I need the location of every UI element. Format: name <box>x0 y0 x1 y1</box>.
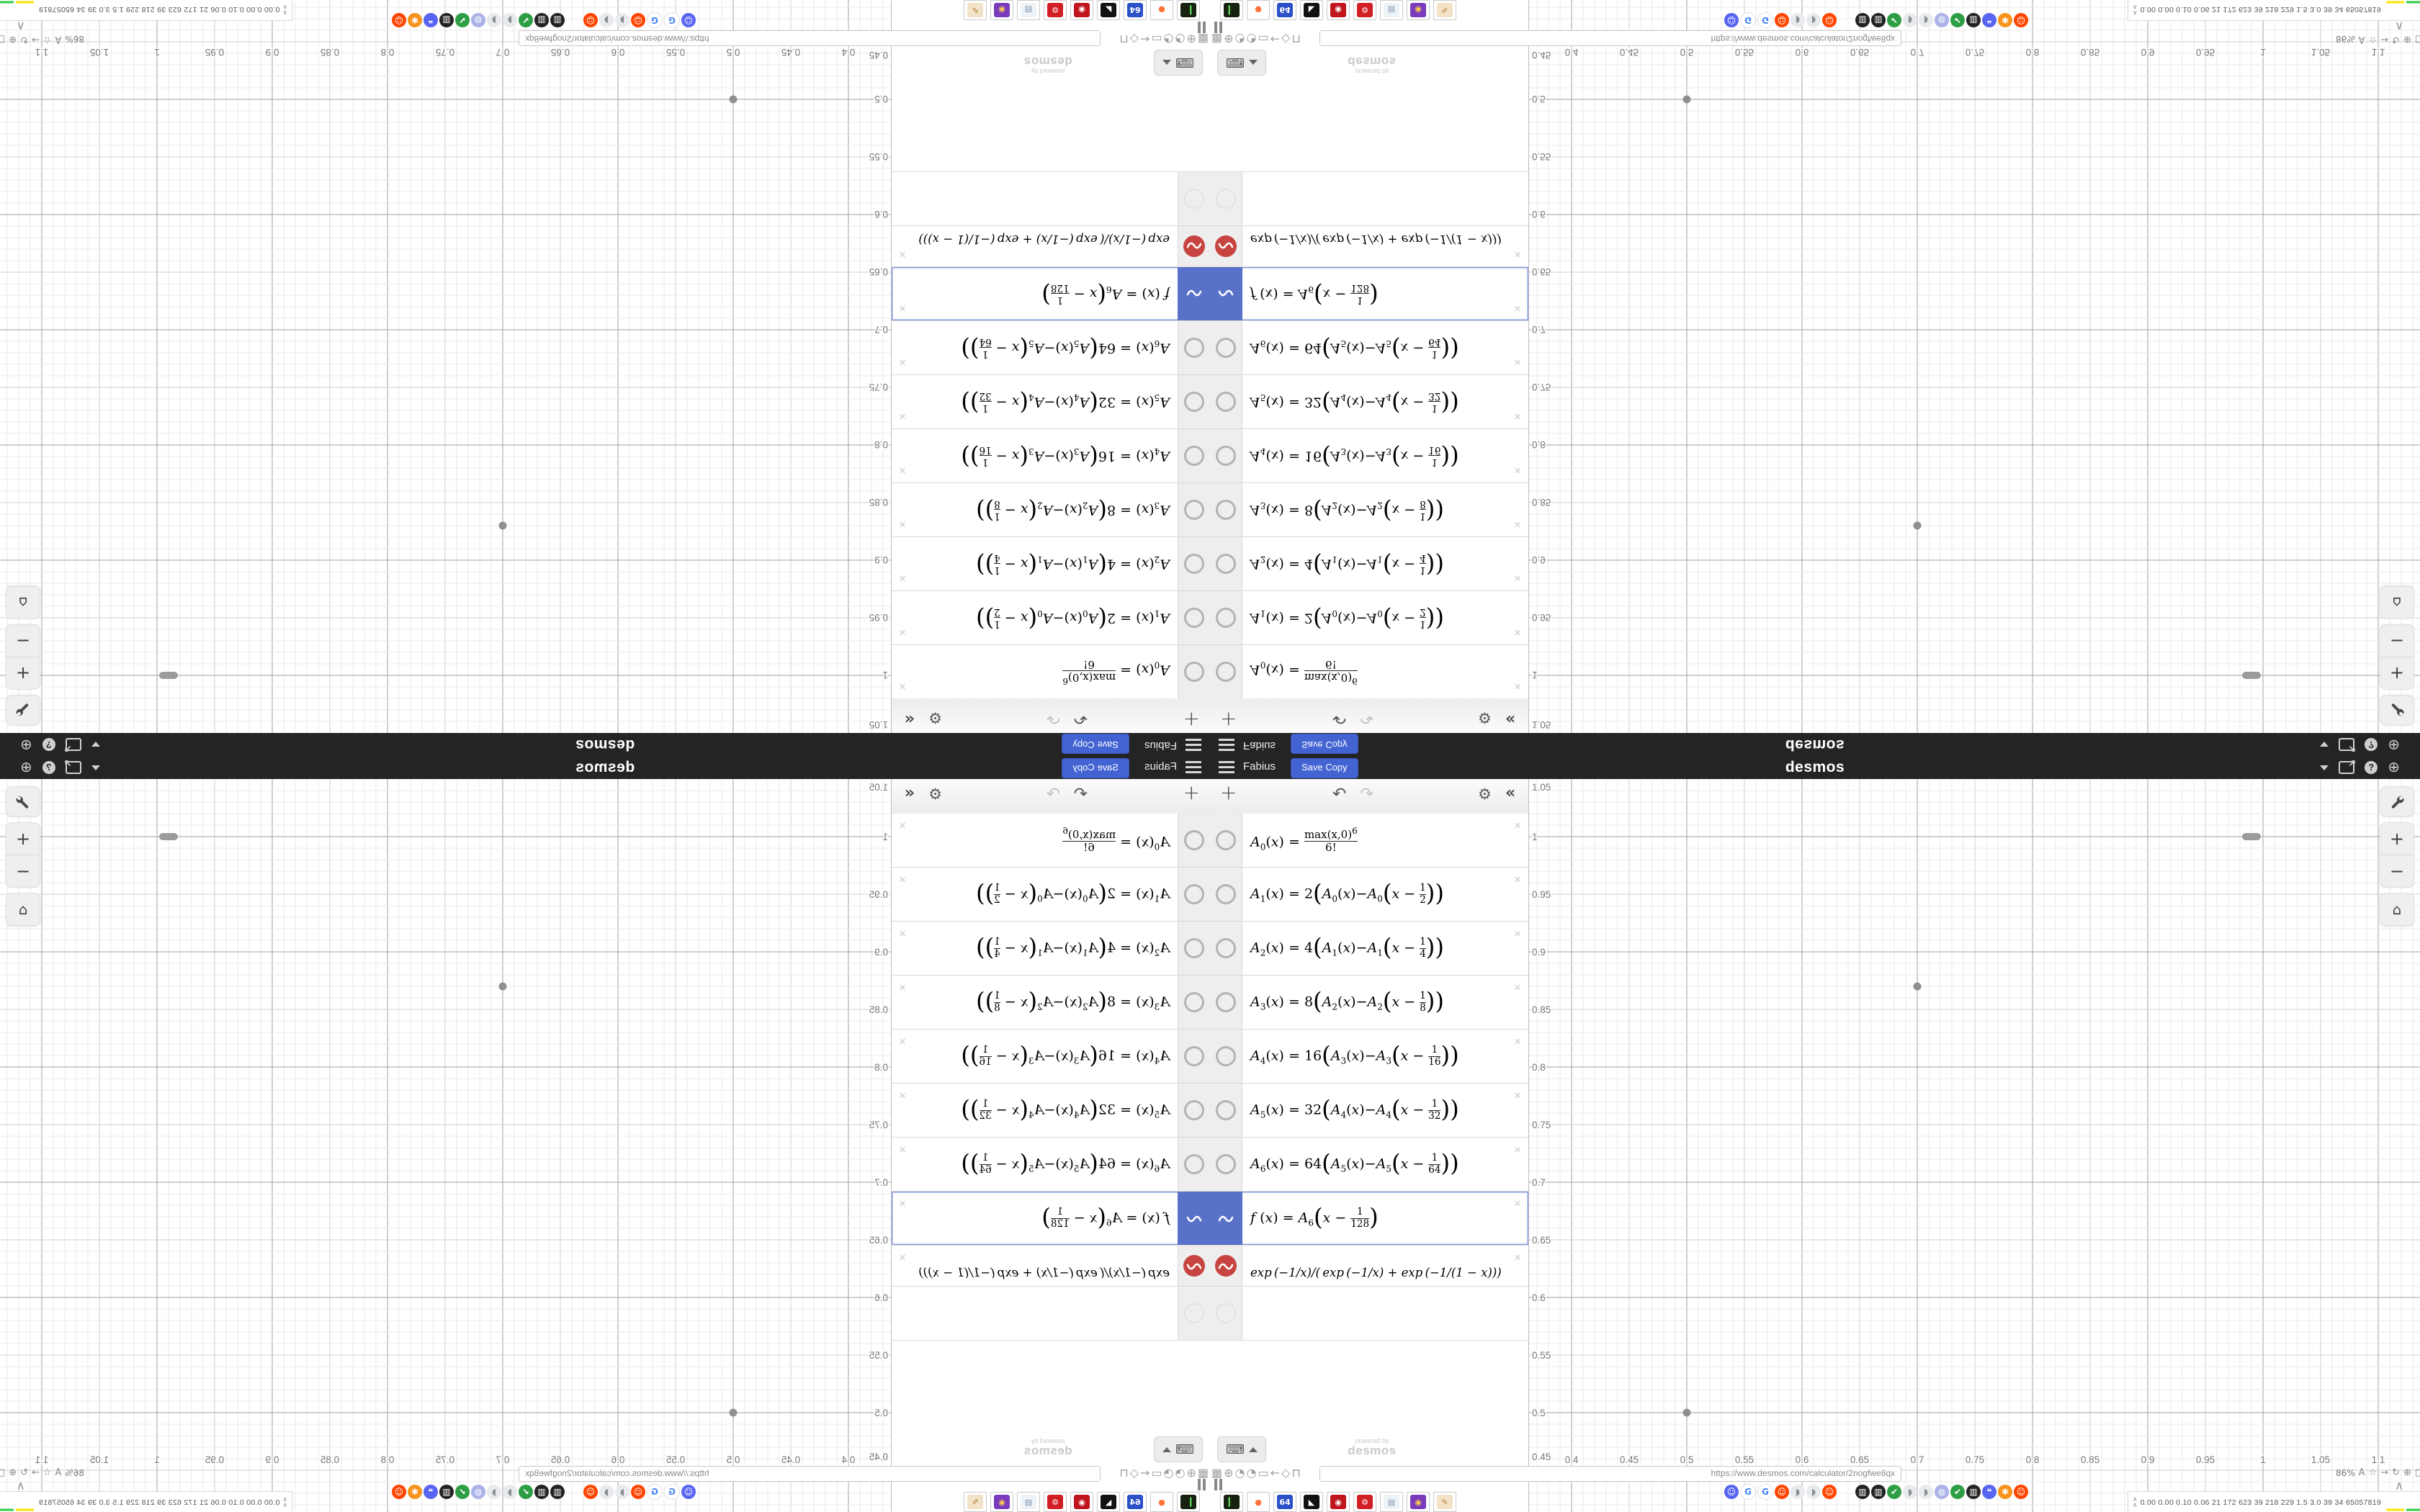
trash-icon[interactable]: ▦ <box>1211 33 1222 47</box>
fish-favicon[interactable]: ◗ <box>599 13 614 27</box>
delete-expression-icon[interactable]: × <box>899 1035 906 1048</box>
palette-app-icon-button[interactable]: ✎ <box>1433 1492 1456 1512</box>
undo-button[interactable]: ↶ <box>1074 785 1088 804</box>
google-favicon[interactable]: G <box>647 12 663 28</box>
delete-expression-icon[interactable]: × <box>899 572 906 585</box>
graph-canvas[interactable]: 0.40.450.50.550.60.650.70.750.80.850.90.… <box>1529 779 2420 1512</box>
reddit-favicon[interactable]: ☺ <box>631 13 645 27</box>
fish-favicon[interactable]: ◗ <box>1919 13 1933 27</box>
add-expression-button[interactable]: + <box>1183 708 1200 732</box>
share-icon[interactable]: ↗ <box>66 738 81 751</box>
fish-favicon[interactable]: ◗ <box>487 1485 501 1499</box>
reddit-favicon[interactable]: ☺ <box>392 13 406 27</box>
expression-row[interactable]: ×A2(x) = 4(A1(x)−A1(x − 14)) <box>1210 922 1528 976</box>
trash-favicon[interactable]: ▥ <box>439 13 454 27</box>
fox-black-app-icon-button[interactable]: ◣ <box>1300 0 1323 20</box>
keyboard-button[interactable]: ⌨ <box>1217 1436 1266 1462</box>
lavender-globe-favicon[interactable]: ◍ <box>1935 1485 1949 1499</box>
globe-icon[interactable]: ⊕ <box>2403 34 2411 45</box>
pause-icon[interactable] <box>1214 1479 1222 1490</box>
delete-expression-icon[interactable]: × <box>1514 680 1521 693</box>
red-gear-app-icon-button[interactable]: ⚙ <box>1353 0 1376 20</box>
terminal-app-icon-button[interactable]: ▎ <box>1220 0 1243 20</box>
lavender-globe-favicon[interactable]: ◍ <box>471 13 485 27</box>
fish-favicon[interactable]: ◗ <box>1903 13 1917 27</box>
translate-icon[interactable]: A <box>55 1467 61 1478</box>
discord-favicon[interactable]: ☺ <box>681 13 696 27</box>
globe-icon[interactable]: ⊕ <box>9 1467 17 1478</box>
firefox-app-icon-button[interactable]: ● <box>1247 0 1270 20</box>
chat-favicon[interactable]: ❝ <box>423 1485 438 1499</box>
undo-button[interactable]: ↶ <box>1074 708 1088 727</box>
plot-style-wave-icon[interactable] <box>1178 267 1210 320</box>
delete-expression-icon[interactable]: × <box>1514 819 1521 832</box>
shield-icon[interactable]: ◇ <box>1281 1466 1290 1480</box>
settings-gear-icon[interactable]: ⚙ <box>928 709 942 726</box>
help-icon[interactable]: ? <box>2365 738 2378 751</box>
reddit-favicon[interactable]: ☺ <box>583 1485 598 1499</box>
default-zoom-home-button[interactable]: ⌂ <box>2380 893 2414 926</box>
red-disc-app-icon-button[interactable]: ◉ <box>1327 1492 1350 1512</box>
plot-style-wave-icon[interactable] <box>1178 226 1210 266</box>
expression-row-empty[interactable] <box>1210 171 1528 225</box>
google-favicon[interactable]: G <box>664 12 680 28</box>
gauge-icon[interactable]: ◔ <box>1164 33 1174 47</box>
caret-down-icon[interactable] <box>2320 742 2329 747</box>
fish-favicon[interactable]: ◗ <box>487 13 501 27</box>
hidden-plot-circle-icon[interactable] <box>1210 922 1242 975</box>
delete-expression-icon[interactable]: × <box>1514 572 1521 585</box>
graph-settings-wrench-button[interactable] <box>6 696 40 726</box>
settings-gear-icon[interactable]: ⚙ <box>1478 709 1492 726</box>
notepad-app-icon-button[interactable]: ▤ <box>1380 0 1403 20</box>
expression-row[interactable]: ×f (x) = A6(x − 1128) <box>892 1192 1210 1246</box>
hidden-plot-circle-icon[interactable] <box>1210 429 1242 482</box>
trash-favicon[interactable]: ▥ <box>1855 13 1870 27</box>
notepad-app-icon-button[interactable]: ▤ <box>1380 1492 1403 1512</box>
reddit-favicon[interactable]: ☺ <box>1775 13 1789 27</box>
graph-canvas[interactable]: 0.40.450.50.550.60.650.70.750.80.850.90.… <box>0 779 891 1512</box>
firefox-app-icon-button[interactable]: ● <box>1150 0 1173 20</box>
arrow-right-icon[interactable]: → <box>2380 1467 2388 1478</box>
pause-icon[interactable] <box>1214 22 1222 33</box>
reddit-favicon[interactable]: ☺ <box>392 1485 406 1499</box>
add-expression-button[interactable]: + <box>1220 708 1237 732</box>
default-zoom-home-button[interactable]: ⌂ <box>6 586 40 619</box>
caret-down-icon[interactable] <box>91 742 100 747</box>
graph-paper[interactable]: 0.40.450.50.550.60.650.70.750.80.850.90.… <box>1529 779 2420 1512</box>
fish-favicon[interactable]: ◗ <box>1919 1485 1933 1499</box>
graph-canvas[interactable]: 0.40.450.50.550.60.650.70.750.80.850.90.… <box>1529 0 2420 733</box>
translate-icon[interactable]: A <box>2359 1467 2365 1478</box>
hidden-plot-circle-icon[interactable] <box>1210 483 1242 536</box>
delete-expression-icon[interactable]: × <box>1514 248 1521 261</box>
floppy64-app-icon-button[interactable]: 64 <box>1273 1492 1296 1512</box>
hidden-plot-circle-icon[interactable] <box>1210 645 1242 698</box>
expression-row[interactable]: ×f (x) = A6(x − 1128) <box>892 266 1210 320</box>
fish-favicon[interactable]: ◗ <box>1806 1485 1821 1499</box>
lavender-globe-favicon[interactable]: ◍ <box>1935 13 1949 27</box>
hidden-plot-circle-icon[interactable] <box>1210 1138 1242 1191</box>
reddit-favicon[interactable]: ☺ <box>583 13 598 27</box>
star-icon[interactable]: ☆ <box>2369 1467 2378 1478</box>
delete-expression-icon[interactable]: × <box>899 410 906 423</box>
undo-button[interactable]: ↶ <box>1332 708 1346 727</box>
expression-row[interactable]: ×A3(x) = 8(A2(x)−A2(x − 18)) <box>1210 482 1528 536</box>
delete-expression-icon[interactable]: × <box>1514 518 1521 531</box>
google-favicon[interactable]: G <box>1757 12 1773 28</box>
hidden-plot-circle-icon[interactable] <box>1210 868 1242 921</box>
discord-favicon[interactable]: ☺ <box>1724 13 1739 27</box>
plot-style-wave-icon[interactable] <box>1178 1246 1210 1286</box>
trash-favicon[interactable]: ▥ <box>550 13 565 27</box>
gauge-icon[interactable]: ◔ <box>1175 33 1186 47</box>
fish-favicon[interactable]: ◗ <box>615 13 629 27</box>
delete-expression-icon[interactable]: × <box>899 626 906 639</box>
delete-expression-icon[interactable]: × <box>899 819 906 832</box>
graph-canvas[interactable]: 0.40.450.50.550.60.650.70.750.80.850.90.… <box>0 0 891 733</box>
google-favicon[interactable]: G <box>647 1484 663 1500</box>
lock-icon[interactable]: ⊓ <box>1291 33 1300 47</box>
fish-favicon[interactable]: ◗ <box>1791 1485 1805 1499</box>
red-disc-app-icon-button[interactable]: ◉ <box>1327 0 1350 20</box>
trash-favicon[interactable]: ▥ <box>550 1485 565 1499</box>
expression-row[interactable]: ×A1(x) = 2(A0(x)−A0(x − 12)) <box>1210 868 1528 922</box>
hidden-plot-circle-icon[interactable] <box>1210 375 1242 428</box>
delete-expression-icon[interactable]: × <box>1514 873 1521 886</box>
reddit-favicon[interactable]: ☺ <box>2014 13 2028 27</box>
fox-black-app-icon-button[interactable]: ◣ <box>1300 1492 1323 1512</box>
star-icon[interactable]: ☆ <box>43 1467 52 1478</box>
plot-style-wave-icon[interactable] <box>1210 1246 1242 1286</box>
globe-icon[interactable]: ⊕ <box>2403 1467 2411 1478</box>
caret-down-icon[interactable] <box>2320 765 2329 770</box>
delete-expression-icon[interactable]: × <box>1514 1089 1521 1102</box>
window-icon[interactable]: □ <box>0 34 5 45</box>
trash-favicon[interactable]: ▥ <box>534 13 549 27</box>
pause-icon[interactable] <box>1198 22 1206 33</box>
expression-row[interactable]: ×A0(x) = max(x,0)66! <box>892 814 1210 868</box>
firefox-app-icon-button[interactable]: ● <box>1150 1492 1173 1512</box>
owl-app-icon-button[interactable]: ◉ <box>990 0 1013 20</box>
hidden-plot-circle-icon[interactable] <box>1178 868 1210 921</box>
expression-row[interactable]: ×A1(x) = 2(A0(x)−A0(x − 12)) <box>892 590 1210 644</box>
terminal-app-icon-button[interactable]: ▎ <box>1177 0 1200 20</box>
plot-style-wave-icon[interactable] <box>1210 1192 1242 1245</box>
green-check-favicon[interactable]: ✔ <box>1950 13 1965 27</box>
expression-row-empty[interactable] <box>1210 1287 1528 1341</box>
hidden-plot-circle-icon[interactable] <box>1178 814 1210 867</box>
caret-down-icon[interactable] <box>91 765 100 770</box>
folder-icon[interactable]: ▭ <box>1258 1466 1268 1480</box>
delete-expression-icon[interactable]: × <box>1514 1251 1521 1264</box>
hidden-plot-circle-icon[interactable] <box>1210 591 1242 644</box>
fish-favicon[interactable]: ◗ <box>599 1485 614 1499</box>
hidden-plot-circle-icon[interactable] <box>1178 321 1210 374</box>
zoom-out-button[interactable]: − <box>2380 855 2414 887</box>
expression-row[interactable]: ×A3(x) = 8(A2(x)−A2(x − 18)) <box>1210 976 1528 1030</box>
lock-icon[interactable]: ⊓ <box>1119 33 1128 47</box>
reload-icon[interactable]: ↻ <box>20 1467 28 1478</box>
trash-favicon[interactable]: ▥ <box>1871 1485 1886 1499</box>
google-favicon[interactable]: G <box>1740 12 1756 28</box>
trash-icon[interactable]: ▦ <box>1198 1466 1209 1480</box>
reddit-favicon[interactable]: ☺ <box>1822 1485 1837 1499</box>
trash-favicon[interactable]: ▥ <box>534 1485 549 1499</box>
expression-row[interactable]: ×f (x) = A6(x − 1128) <box>1210 1192 1528 1246</box>
expression-row[interactable]: ×A4(x) = 16(A3(x)−A3(x − 116)) <box>892 428 1210 482</box>
expression-row[interactable]: ×A2(x) = 4(A1(x)−A1(x − 14)) <box>892 536 1210 590</box>
plot-style-wave-icon[interactable] <box>1210 267 1242 320</box>
owl-app-icon-button[interactable]: ◉ <box>1407 1492 1430 1512</box>
palette-app-icon-button[interactable]: ✎ <box>964 0 987 20</box>
hidden-plot-circle-icon[interactable] <box>1178 483 1210 536</box>
arrow-left-icon[interactable]: ← <box>1140 33 1149 47</box>
discord-favicon[interactable]: ☺ <box>681 1485 696 1499</box>
expression-row[interactable]: ×A1(x) = 2(A0(x)−A0(x − 12)) <box>1210 590 1528 644</box>
hidden-plot-circle-icon[interactable] <box>1178 976 1210 1029</box>
zoom-in-button[interactable]: + <box>6 657 40 689</box>
firefox-app-icon-button[interactable]: ● <box>1247 1492 1270 1512</box>
gauge-icon[interactable]: ◔ <box>1235 33 1245 47</box>
redo-button[interactable]: ↷ <box>1360 708 1373 727</box>
reddit-favicon[interactable]: ☺ <box>2014 1485 2028 1499</box>
expression-row[interactable]: ×exp (−1/x)/( exp (−1/x) + exp (−1/(1 − … <box>892 1246 1210 1287</box>
star-icon[interactable]: ☆ <box>2369 34 2378 45</box>
expression-row[interactable]: ×exp (−1/x)/( exp (−1/x) + exp (−1/(1 − … <box>892 225 1210 266</box>
delete-expression-icon[interactable]: × <box>1514 464 1521 477</box>
fish-favicon[interactable]: ◗ <box>1806 13 1821 27</box>
globe-icon[interactable]: ⊕ <box>20 737 32 752</box>
expression-row[interactable]: ×exp (−1/x)/( exp (−1/x) + exp (−1/(1 − … <box>1210 1246 1528 1287</box>
help-icon[interactable]: ? <box>2365 761 2378 774</box>
terminal-app-icon-button[interactable]: ▎ <box>1220 1492 1243 1512</box>
globe-icon[interactable]: ⊕ <box>2388 737 2400 752</box>
graph-paper[interactable]: 0.40.450.50.550.60.650.70.750.80.850.90.… <box>0 0 891 733</box>
expression-row[interactable]: ×A6(x) = 64(A5(x)−A5(x − 164)) <box>892 1138 1210 1192</box>
fox-black-app-icon-button[interactable]: ◣ <box>1097 1492 1120 1512</box>
arrow-left-icon[interactable]: ← <box>1270 1466 1280 1480</box>
expression-row[interactable]: ×A3(x) = 8(A2(x)−A2(x − 18)) <box>892 482 1210 536</box>
delete-expression-icon[interactable]: × <box>899 680 906 693</box>
green-check-favicon[interactable]: ✔ <box>1887 1485 1901 1499</box>
collapse-panel-button[interactable]: « <box>1505 784 1515 802</box>
shield-icon[interactable]: ◇ <box>1281 33 1290 47</box>
delete-expression-icon[interactable]: × <box>899 981 906 994</box>
window-icon[interactable]: □ <box>2415 1467 2420 1478</box>
arrow-right-icon[interactable]: → <box>32 1467 40 1478</box>
expression-row[interactable]: ×A4(x) = 16(A3(x)−A3(x − 116)) <box>1210 1030 1528 1084</box>
window-icon[interactable]: □ <box>0 1467 5 1478</box>
settings-gear-icon[interactable]: ⚙ <box>928 786 942 803</box>
translate-icon[interactable]: A <box>55 34 61 45</box>
hidden-plot-circle-icon[interactable] <box>1210 976 1242 1029</box>
floppy64-app-icon-button[interactable]: 64 <box>1273 0 1296 20</box>
help-icon[interactable]: ? <box>42 738 55 751</box>
reload-icon[interactable]: ↻ <box>2392 34 2400 45</box>
fish-favicon[interactable]: ◗ <box>1791 13 1805 27</box>
default-zoom-home-button[interactable]: ⌂ <box>2380 586 2414 619</box>
graph-settings-wrench-button[interactable] <box>2380 786 2414 816</box>
red-disc-app-icon-button[interactable]: ◉ <box>1070 0 1093 20</box>
sun-badge-favicon[interactable]: ✱ <box>408 1485 422 1499</box>
zoom-in-button[interactable]: + <box>2380 657 2414 689</box>
reddit-favicon[interactable]: ☺ <box>1822 13 1837 27</box>
folder-icon[interactable]: ▭ <box>1258 33 1268 47</box>
delete-expression-icon[interactable]: × <box>1514 1197 1521 1210</box>
hidden-plot-circle-icon[interactable] <box>1178 645 1210 698</box>
help-icon[interactable]: ? <box>42 761 55 774</box>
globe-icon[interactable]: ⊕ <box>9 34 17 45</box>
hidden-plot-circle-icon[interactable] <box>1178 1138 1210 1191</box>
red-gear-app-icon-button[interactable]: ⚙ <box>1044 1492 1067 1512</box>
delete-expression-icon[interactable]: × <box>899 927 906 940</box>
gauge-icon[interactable]: ◔ <box>1235 1466 1245 1480</box>
reload-icon[interactable]: ↻ <box>20 34 28 45</box>
globe-icon[interactable]: ⊕ <box>20 760 32 775</box>
hidden-plot-circle-icon[interactable] <box>1210 814 1242 867</box>
keyboard-button[interactable]: ⌨ <box>1217 50 1266 76</box>
add-expression-button[interactable]: + <box>1183 780 1200 804</box>
folder-icon[interactable]: ▭ <box>1151 1466 1162 1480</box>
monitor-caret-icon[interactable]: ∧∧ <box>282 1497 287 1507</box>
graph-settings-wrench-button[interactable] <box>2380 696 2414 726</box>
fish-favicon[interactable]: ◗ <box>503 13 517 27</box>
google-favicon[interactable]: G <box>664 1484 680 1500</box>
fish-favicon[interactable]: ◗ <box>1903 1485 1917 1499</box>
gauge-icon[interactable]: ◔ <box>1247 1466 1257 1480</box>
expression-row[interactable]: ×A5(x) = 32(A4(x)−A4(x − 132)) <box>892 1084 1210 1138</box>
hidden-plot-circle-icon[interactable] <box>1210 1084 1242 1137</box>
add-expression-button[interactable]: + <box>1220 780 1237 804</box>
fish-favicon[interactable]: ◗ <box>503 1485 517 1499</box>
hidden-plot-circle-icon[interactable] <box>1210 321 1242 374</box>
shield-icon[interactable]: ◇ <box>1130 33 1139 47</box>
sun-badge-favicon[interactable]: ✱ <box>1998 1485 2012 1499</box>
expression-row[interactable]: ×A6(x) = 64(A5(x)−A5(x − 164)) <box>1210 1138 1528 1192</box>
expression-row[interactable]: ×A0(x) = max(x,0)66! <box>1210 644 1528 698</box>
trash-favicon[interactable]: ▥ <box>439 1485 454 1499</box>
expression-row[interactable]: ×A5(x) = 32(A4(x)−A4(x − 132)) <box>1210 374 1528 428</box>
expression-row-empty[interactable] <box>892 171 1210 225</box>
folder-icon[interactable]: ▭ <box>1151 33 1162 47</box>
trash-favicon[interactable]: ▥ <box>1855 1485 1870 1499</box>
trash-icon[interactable]: ▦ <box>1211 1466 1222 1480</box>
green-check-favicon[interactable]: ✔ <box>519 1485 533 1499</box>
delete-expression-icon[interactable]: × <box>899 518 906 531</box>
globe-icon[interactable]: ⊕ <box>1186 1466 1196 1480</box>
pause-icon[interactable] <box>1198 1479 1206 1490</box>
delete-expression-icon[interactable]: × <box>899 1143 906 1156</box>
red-gear-app-icon-button[interactable]: ⚙ <box>1044 0 1067 20</box>
arrow-left-icon[interactable]: ← <box>1270 33 1280 47</box>
delete-expression-icon[interactable]: × <box>899 1089 906 1102</box>
green-check-favicon[interactable]: ✔ <box>1887 13 1901 27</box>
floppy64-app-icon-button[interactable]: 64 <box>1124 0 1147 20</box>
globe-icon[interactable]: ⊕ <box>2388 760 2400 775</box>
red-disc-app-icon-button[interactable]: ◉ <box>1070 1492 1093 1512</box>
expression-row[interactable]: ×A1(x) = 2(A0(x)−A0(x − 12)) <box>892 868 1210 922</box>
share-icon[interactable]: ↗ <box>2339 738 2354 751</box>
fish-favicon[interactable]: ◗ <box>615 1485 629 1499</box>
keyboard-button[interactable]: ⌨ <box>1154 50 1203 76</box>
chat-favicon[interactable]: ❝ <box>1982 1485 1996 1499</box>
keyboard-button[interactable]: ⌨ <box>1154 1436 1203 1462</box>
plot-style-wave-icon[interactable] <box>1210 226 1242 266</box>
new-row-circle-icon[interactable] <box>1210 1287 1242 1340</box>
shield-icon[interactable]: ◇ <box>1130 1466 1139 1480</box>
zoom-out-button[interactable]: − <box>6 625 40 657</box>
globe-icon[interactable]: ⊕ <box>1186 33 1196 47</box>
redo-button[interactable]: ↷ <box>1047 785 1060 804</box>
hidden-plot-circle-icon[interactable] <box>1178 591 1210 644</box>
zoom-in-button[interactable]: + <box>6 823 40 855</box>
hidden-plot-circle-icon[interactable] <box>1210 537 1242 590</box>
globe-icon[interactable]: ⊕ <box>1224 33 1233 47</box>
translate-icon[interactable]: A <box>2359 34 2365 45</box>
hidden-plot-circle-icon[interactable] <box>1178 537 1210 590</box>
new-row-circle-icon[interactable] <box>1178 172 1210 225</box>
hidden-plot-circle-icon[interactable] <box>1178 1030 1210 1083</box>
fox-black-app-icon-button[interactable]: ◣ <box>1097 0 1120 20</box>
collapse-caret-icon[interactable]: ∧ <box>2395 19 2403 33</box>
arrow-left-icon[interactable]: ← <box>1140 1466 1149 1480</box>
reddit-favicon[interactable]: ☺ <box>1775 1485 1789 1499</box>
expression-row[interactable]: ×A4(x) = 16(A3(x)−A3(x − 116)) <box>1210 428 1528 482</box>
zoom-out-button[interactable]: − <box>6 855 40 887</box>
google-favicon[interactable]: G <box>1740 1484 1756 1500</box>
discord-favicon[interactable]: ☺ <box>1724 1485 1739 1499</box>
delete-expression-icon[interactable]: × <box>899 1197 906 1210</box>
reload-icon[interactable]: ↻ <box>2392 1467 2400 1478</box>
delete-expression-icon[interactable]: × <box>1514 1143 1521 1156</box>
notepad-app-icon-button[interactable]: ▤ <box>1017 1492 1040 1512</box>
lock-icon[interactable]: ⊓ <box>1291 1466 1300 1480</box>
expression-row[interactable]: ×A3(x) = 8(A2(x)−A2(x − 18)) <box>892 976 1210 1030</box>
gauge-icon[interactable]: ◔ <box>1164 1466 1174 1480</box>
notepad-app-icon-button[interactable]: ▤ <box>1017 0 1040 20</box>
expression-row[interactable]: ×A6(x) = 64(A5(x)−A5(x − 164)) <box>892 320 1210 374</box>
delete-expression-icon[interactable]: × <box>1514 1035 1521 1048</box>
window-icon[interactable]: □ <box>2415 34 2420 45</box>
hidden-plot-circle-icon[interactable] <box>1178 429 1210 482</box>
globe-icon[interactable]: ⊕ <box>1224 1466 1233 1480</box>
owl-app-icon-button[interactable]: ◉ <box>1407 0 1430 20</box>
graph-paper[interactable]: 0.40.450.50.550.60.650.70.750.80.850.90.… <box>0 779 891 1512</box>
chat-favicon[interactable]: ❝ <box>423 13 438 27</box>
redo-button[interactable]: ↷ <box>1360 785 1373 804</box>
red-gear-app-icon-button[interactable]: ⚙ <box>1353 1492 1376 1512</box>
chat-favicon[interactable]: ❝ <box>1982 13 1996 27</box>
arrow-right-icon[interactable]: → <box>2380 34 2388 45</box>
arrow-right-icon[interactable]: → <box>32 34 40 45</box>
monitor-caret-icon[interactable]: ∧∧ <box>2133 4 2138 14</box>
delete-expression-icon[interactable]: × <box>1514 626 1521 639</box>
expression-row[interactable]: ×A6(x) = 64(A5(x)−A5(x − 164)) <box>1210 320 1528 374</box>
palette-app-icon-button[interactable]: ✎ <box>1433 0 1456 20</box>
floppy64-app-icon-button[interactable]: 64 <box>1124 1492 1147 1512</box>
delete-expression-icon[interactable]: × <box>1514 927 1521 940</box>
new-row-circle-icon[interactable] <box>1178 1287 1210 1340</box>
collapse-panel-button[interactable]: « <box>1505 710 1515 728</box>
share-icon[interactable]: ↗ <box>2339 761 2354 774</box>
expression-row[interactable]: ×A5(x) = 32(A4(x)−A4(x − 132)) <box>892 374 1210 428</box>
lavender-globe-favicon[interactable]: ◍ <box>471 1485 485 1499</box>
monitor-caret-icon[interactable]: ∧∧ <box>2133 1497 2138 1507</box>
zoom-in-button[interactable]: + <box>2380 823 2414 855</box>
delete-expression-icon[interactable]: × <box>1514 981 1521 994</box>
delete-expression-icon[interactable]: × <box>1514 356 1521 369</box>
